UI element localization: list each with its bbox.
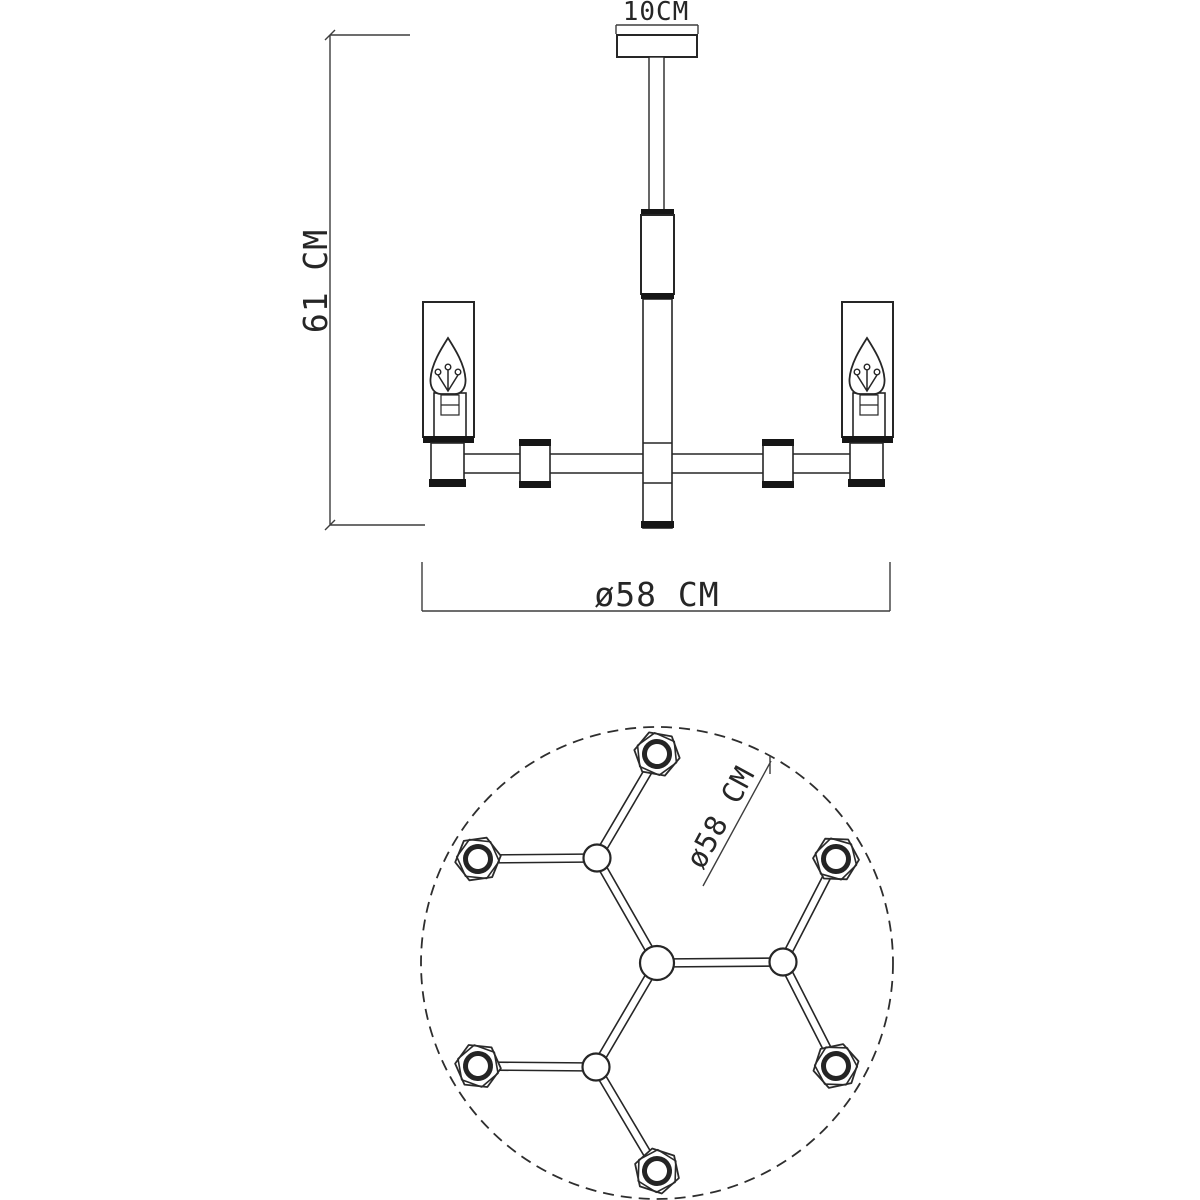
- column-band-bottom: [641, 521, 674, 528]
- side-view: 10CM 61 CM ø58 CM: [296, 0, 893, 614]
- branch-node-right: [770, 949, 797, 976]
- lamp-nut-lower-left: [451, 1040, 506, 1091]
- branch-node-upper-left: [584, 845, 611, 872]
- right-candle: [842, 302, 893, 487]
- top-view: ø58 CM: [421, 727, 893, 1200]
- arm-connector-left: [519, 439, 551, 488]
- side-diameter-label: ø58 CM: [594, 575, 719, 614]
- top-diameter-label: ø58 CM: [679, 760, 762, 874]
- height-label: 61 CM: [296, 229, 335, 333]
- lamp-nut-lower-right: [807, 1038, 866, 1094]
- stem-rod: [649, 57, 664, 210]
- canopy-width-label: 10CM: [623, 0, 690, 27]
- lamp-nut-top: [628, 727, 686, 781]
- column-upper-tube: [641, 215, 674, 294]
- canopy-width-dimension: 10CM: [616, 0, 698, 34]
- lamp-nut-upper-right: [810, 835, 862, 883]
- ceiling-canopy: [617, 35, 697, 57]
- side-diameter-dimension: ø58 CM: [422, 562, 890, 614]
- column-lower-tube: [643, 299, 672, 528]
- lamp-nut-bottom: [626, 1141, 688, 1200]
- arm-connector-right: [762, 439, 794, 488]
- drawing-canvas: 10CM 61 CM ø58 CM: [0, 0, 1200, 1200]
- chandelier-technical-drawing: 10CM 61 CM ø58 CM: [0, 0, 1200, 1200]
- height-dimension: 61 CM: [296, 30, 425, 530]
- left-candle: [423, 302, 474, 487]
- top-diameter-dimension: ø58 CM: [679, 756, 771, 886]
- column-band-middle: [641, 293, 674, 299]
- branch-node-lower-left: [583, 1054, 610, 1081]
- center-hub-node: [640, 946, 674, 980]
- lamp-nut-upper-left: [450, 833, 506, 886]
